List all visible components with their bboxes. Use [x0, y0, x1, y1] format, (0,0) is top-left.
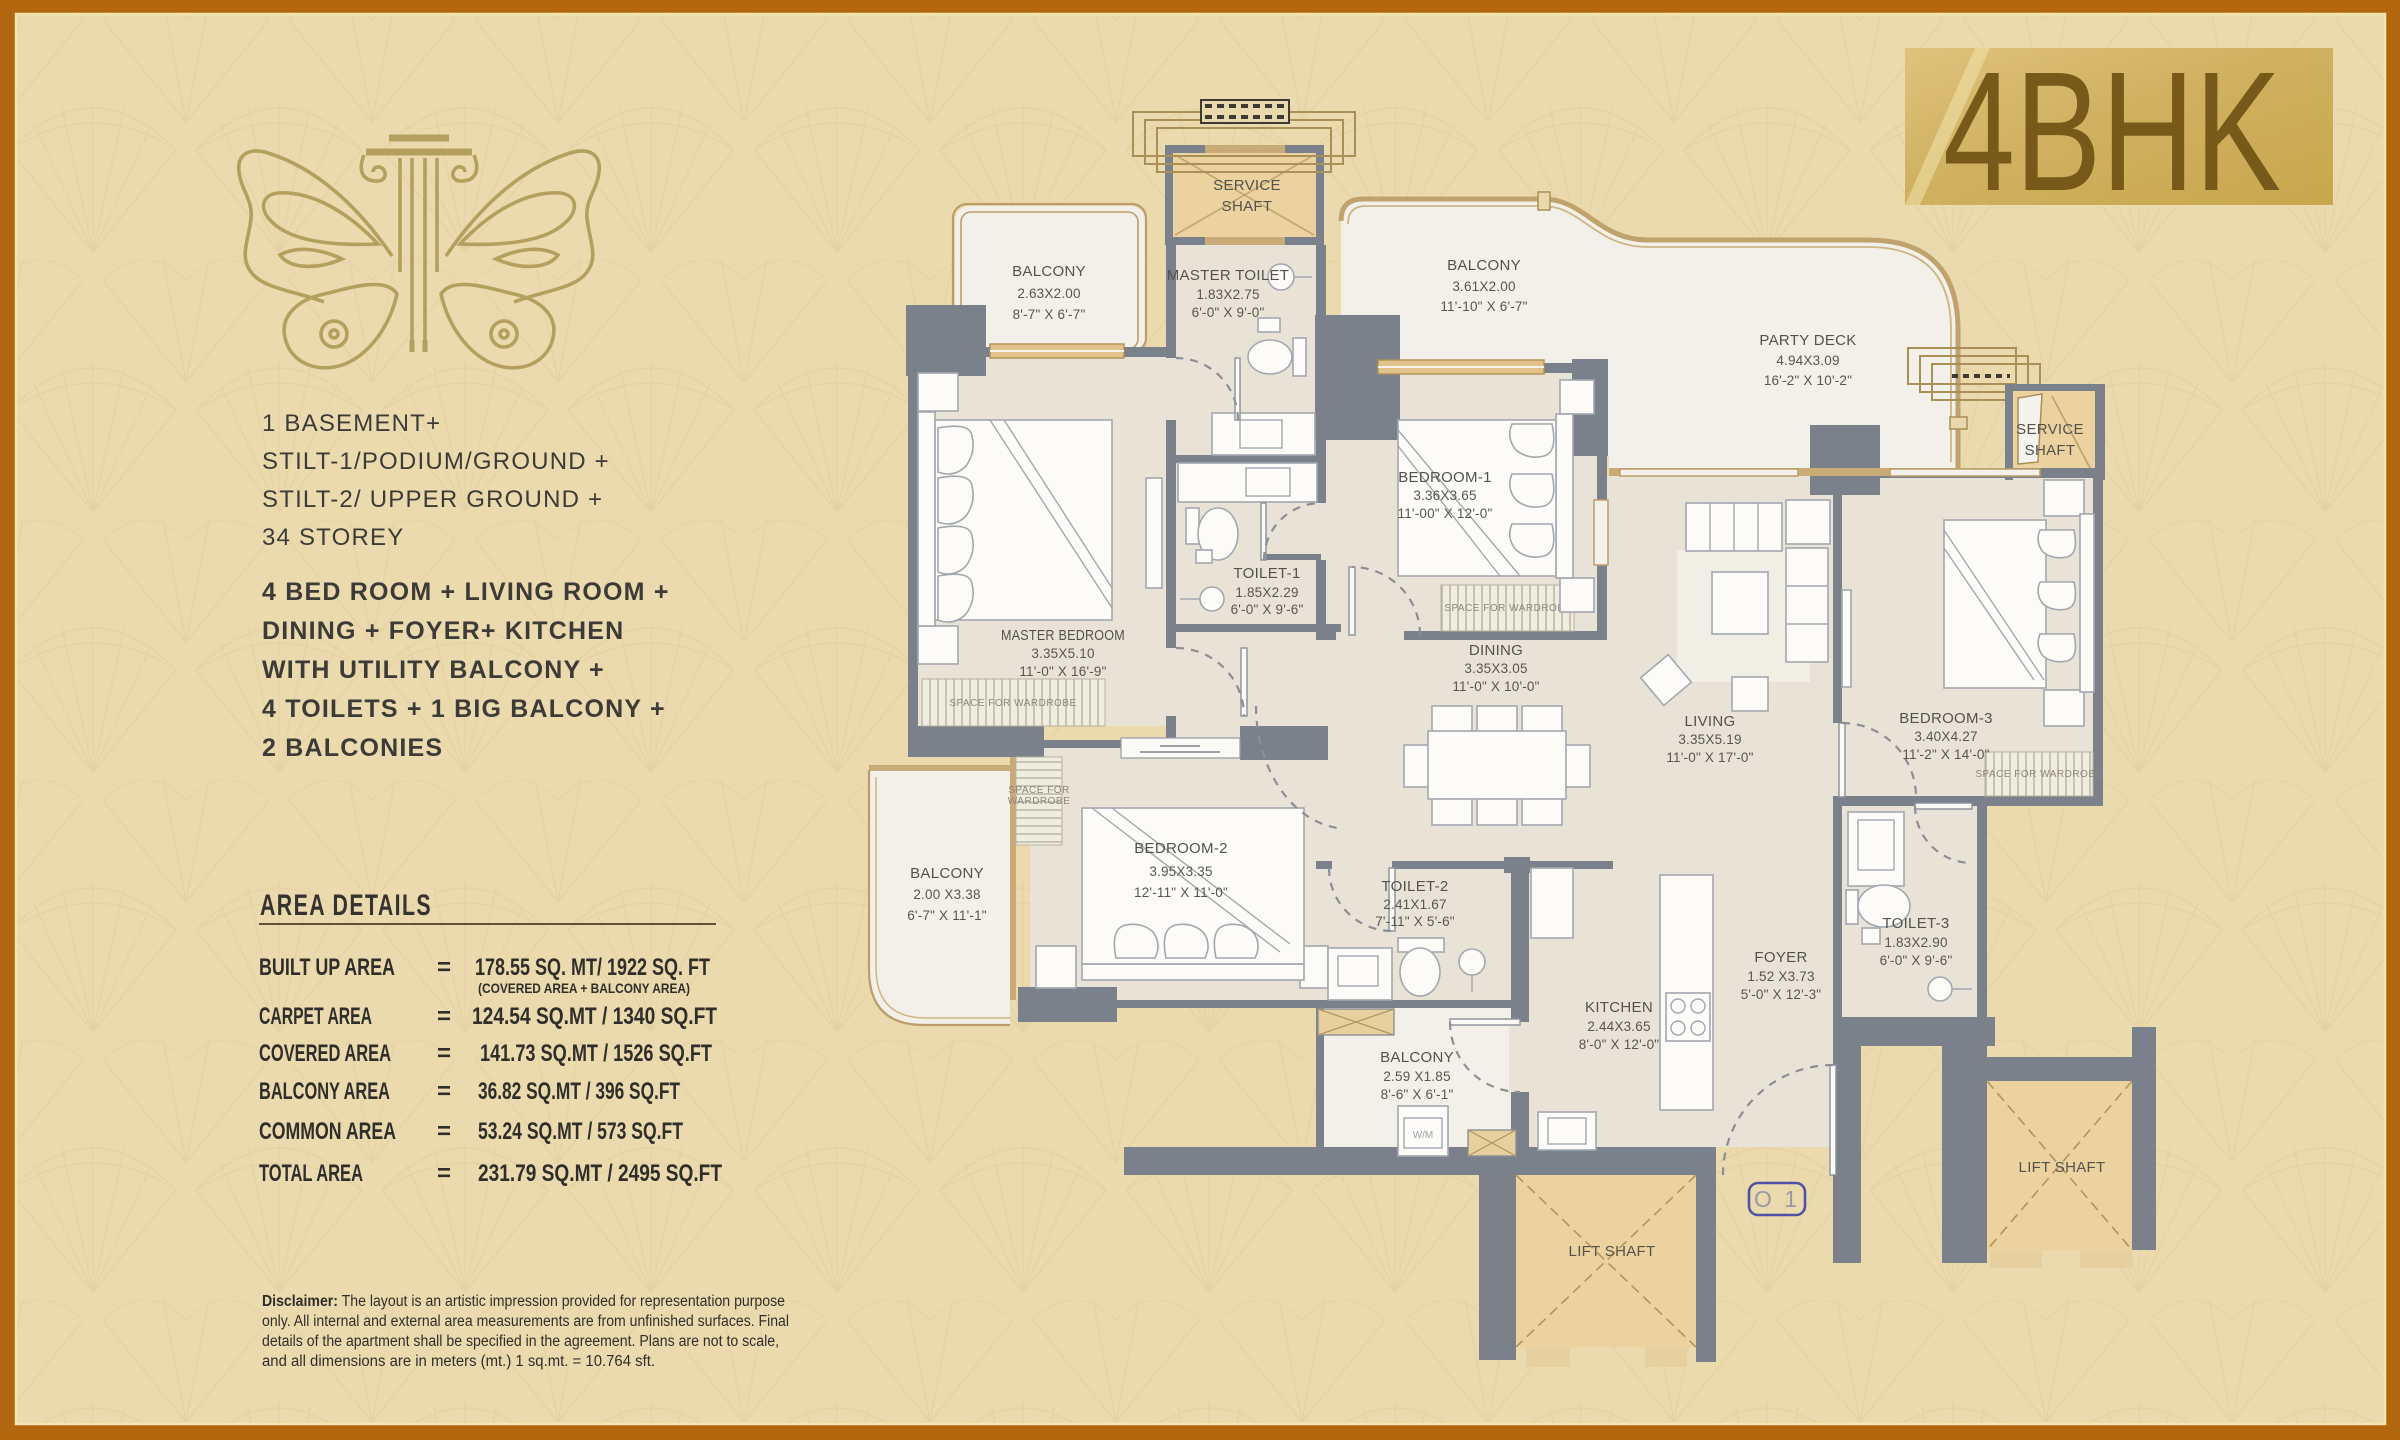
svg-text:BEDROOM-2: BEDROOM-2: [1134, 840, 1228, 857]
svg-text:BUILT UP AREA: BUILT UP AREA: [259, 954, 395, 981]
svg-text:4.94X3.09: 4.94X3.09: [1776, 353, 1839, 368]
svg-text:11'-0" X 16'-9": 11'-0" X 16'-9": [1019, 664, 1106, 679]
svg-text:BALCONY: BALCONY: [910, 865, 984, 882]
svg-text:SPACE FOR: SPACE FOR: [1008, 785, 1070, 796]
svg-text:only. All internal and externa: only. All internal and external area mea…: [262, 1313, 789, 1330]
svg-text:12'-11" X 11'-0": 12'-11" X 11'-0": [1134, 885, 1228, 900]
svg-text:SPACE FOR WARDROBE: SPACE FOR WARDROBE: [949, 698, 1076, 709]
svg-text:CARPET AREA: CARPET AREA: [259, 1003, 372, 1030]
svg-text:SHAFT: SHAFT: [2025, 442, 2076, 459]
svg-text:BEDROOM-3: BEDROOM-3: [1899, 710, 1993, 727]
svg-text:STILT-1/PODIUM/GROUND +: STILT-1/PODIUM/GROUND +: [262, 448, 610, 475]
svg-text:TOILET-1: TOILET-1: [1233, 565, 1300, 582]
svg-text:Disclaimer: The layout is an a: Disclaimer: The layout is an artistic im…: [262, 1293, 785, 1310]
svg-text:36.82 SQ.MT / 396 SQ.FT: 36.82 SQ.MT / 396 SQ.FT: [478, 1078, 680, 1105]
svg-text:1 BASEMENT+: 1 BASEMENT+: [262, 410, 441, 437]
svg-text:AREA DETAILS: AREA DETAILS: [260, 889, 432, 922]
svg-text:2.44X3.65: 2.44X3.65: [1587, 1019, 1650, 1034]
svg-text:WARDROBE: WARDROBE: [1008, 796, 1071, 807]
svg-text:11'-2" X 14'-0": 11'-2" X 14'-0": [1902, 747, 1989, 762]
svg-text:8'-0" X 12'-0": 8'-0" X 12'-0": [1579, 1037, 1660, 1052]
svg-text:5'-0" X 12'-3": 5'-0" X 12'-3": [1741, 987, 1822, 1002]
svg-text:4BHK: 4BHK: [1943, 37, 2281, 227]
svg-text:=: =: [437, 1160, 451, 1187]
svg-text:LIFT SHAFT: LIFT SHAFT: [1569, 1243, 1656, 1260]
svg-text:and all dimensions are in mete: and all dimensions are in meters (mt.) 1…: [262, 1353, 655, 1370]
svg-text:3.95X3.35: 3.95X3.35: [1149, 864, 1212, 879]
svg-text:MASTER TOILET: MASTER TOILET: [1167, 267, 1290, 284]
svg-text:COMMON AREA: COMMON AREA: [259, 1118, 396, 1145]
svg-text:231.79 SQ.MT / 2495 SQ.FT: 231.79 SQ.MT / 2495 SQ.FT: [478, 1160, 722, 1187]
svg-text:141.73 SQ.MT / 1526 SQ.FT: 141.73 SQ.MT / 1526 SQ.FT: [480, 1040, 712, 1067]
svg-text:=: =: [437, 1118, 451, 1145]
svg-text:6'-0" X 9'-0": 6'-0" X 9'-0": [1192, 305, 1265, 320]
svg-text:TOILET-2: TOILET-2: [1381, 878, 1448, 895]
svg-text:PARTY DECK: PARTY DECK: [1759, 332, 1856, 349]
svg-text:SPACE FOR WARDROBE: SPACE FOR WARDROBE: [1975, 769, 2102, 780]
svg-text:8'-7" X 6'-7": 8'-7" X 6'-7": [1013, 307, 1086, 322]
svg-text:1.83X2.90: 1.83X2.90: [1884, 935, 1947, 950]
svg-text:16'-2" X 10'-2": 16'-2" X 10'-2": [1764, 373, 1852, 388]
svg-text:BALCONY AREA: BALCONY AREA: [259, 1078, 390, 1105]
svg-text:6'-7" X 11'-1": 6'-7" X 11'-1": [907, 908, 987, 923]
svg-text:3.40X4.27: 3.40X4.27: [1914, 729, 1977, 744]
svg-text:53.24 SQ.MT / 573 SQ.FT: 53.24 SQ.MT / 573 SQ.FT: [478, 1118, 683, 1145]
svg-text:1.83X2.75: 1.83X2.75: [1196, 287, 1259, 302]
svg-text:BALCONY: BALCONY: [1380, 1049, 1454, 1066]
svg-text:TOILET-3: TOILET-3: [1882, 915, 1949, 932]
svg-text:(COVERED AREA + BALCONY AREA): (COVERED AREA + BALCONY AREA): [478, 980, 690, 996]
svg-text:6'-0" X 9'-6": 6'-0" X 9'-6": [1880, 953, 1953, 968]
svg-text:2.41X1.67: 2.41X1.67: [1383, 897, 1446, 912]
svg-text:TOTAL AREA: TOTAL AREA: [259, 1160, 363, 1187]
svg-text:34 STOREY: 34 STOREY: [262, 524, 404, 551]
svg-text:11'-10" X 6'-7": 11'-10" X 6'-7": [1440, 299, 1527, 314]
svg-text:MASTER BEDROOM: MASTER BEDROOM: [1001, 627, 1125, 644]
svg-text:6'-0" X 9'-6": 6'-0" X 9'-6": [1231, 602, 1304, 617]
svg-text:SERVICE: SERVICE: [1213, 177, 1281, 194]
svg-text:=: =: [437, 1078, 451, 1105]
svg-text:3.36X3.65: 3.36X3.65: [1413, 488, 1476, 503]
svg-text:O 1: O 1: [1754, 1186, 1800, 1212]
svg-text:FOYER: FOYER: [1754, 949, 1807, 966]
svg-text:details of the apartment shall: details of the apartment shall be specif…: [262, 1333, 779, 1350]
svg-text:SERVICE: SERVICE: [2016, 421, 2084, 438]
svg-text:11'-0" X 10'-0": 11'-0" X 10'-0": [1452, 679, 1539, 694]
svg-text:KITCHEN: KITCHEN: [1585, 999, 1653, 1016]
svg-text:2 BALCONIES: 2 BALCONIES: [262, 734, 443, 762]
svg-text:SPACE FOR WARDROBE: SPACE FOR WARDROBE: [1444, 603, 1571, 614]
svg-text:1.85X2.29: 1.85X2.29: [1235, 585, 1298, 600]
svg-text:BEDROOM-1: BEDROOM-1: [1398, 469, 1492, 486]
svg-text:1.52 X3.73: 1.52 X3.73: [1747, 969, 1814, 984]
svg-text:2.00 X3.38: 2.00 X3.38: [913, 887, 980, 902]
svg-text:3.61X2.00: 3.61X2.00: [1452, 279, 1515, 294]
svg-text:DINING: DINING: [1469, 642, 1523, 659]
svg-text:4 BED ROOM + LIVING ROOM +: 4 BED ROOM + LIVING ROOM +: [262, 578, 670, 606]
svg-text:2.63X2.00: 2.63X2.00: [1017, 286, 1080, 301]
svg-text:=: =: [437, 1040, 451, 1067]
svg-text:LIFT SHAFT: LIFT SHAFT: [2019, 1159, 2106, 1176]
svg-text:DINING + FOYER+ KITCHEN: DINING + FOYER+ KITCHEN: [262, 617, 624, 645]
svg-text:LIVING: LIVING: [1685, 713, 1736, 730]
svg-text:4 TOILETS + 1 BIG BALCONY +: 4 TOILETS + 1 BIG BALCONY +: [262, 695, 666, 723]
svg-text:2.59 X1.85: 2.59 X1.85: [1383, 1069, 1450, 1084]
svg-text:W/M: W/M: [1413, 1130, 1434, 1141]
svg-text:7'-11" X 5'-6": 7'-11" X 5'-6": [1375, 914, 1455, 929]
svg-text:=: =: [437, 954, 451, 981]
svg-text:11'-0" X 17'-0": 11'-0" X 17'-0": [1666, 750, 1753, 765]
svg-text:8'-6" X 6'-1": 8'-6" X 6'-1": [1381, 1087, 1454, 1102]
svg-text:SHAFT: SHAFT: [1222, 198, 1273, 215]
svg-text:124.54 SQ.MT / 1340 SQ.FT: 124.54 SQ.MT / 1340 SQ.FT: [472, 1003, 717, 1030]
svg-text:3.35X5.10: 3.35X5.10: [1031, 646, 1094, 661]
svg-text:COVERED AREA: COVERED AREA: [259, 1040, 391, 1067]
svg-text:BALCONY: BALCONY: [1447, 257, 1521, 274]
svg-text:BALCONY: BALCONY: [1012, 263, 1086, 280]
svg-text:=: =: [437, 1003, 451, 1030]
svg-text:3.35X3.05: 3.35X3.05: [1464, 661, 1527, 676]
svg-text:3.35X5.19: 3.35X5.19: [1678, 732, 1741, 747]
svg-text:WITH UTILITY BALCONY +: WITH UTILITY BALCONY +: [262, 656, 605, 684]
svg-text:11'-00" X 12'-0": 11'-00" X 12'-0": [1398, 506, 1493, 521]
svg-text:178.55 SQ. MT/ 1922 SQ. FT: 178.55 SQ. MT/ 1922 SQ. FT: [475, 954, 710, 981]
svg-text:STILT-2/ UPPER GROUND +: STILT-2/ UPPER GROUND +: [262, 486, 603, 513]
